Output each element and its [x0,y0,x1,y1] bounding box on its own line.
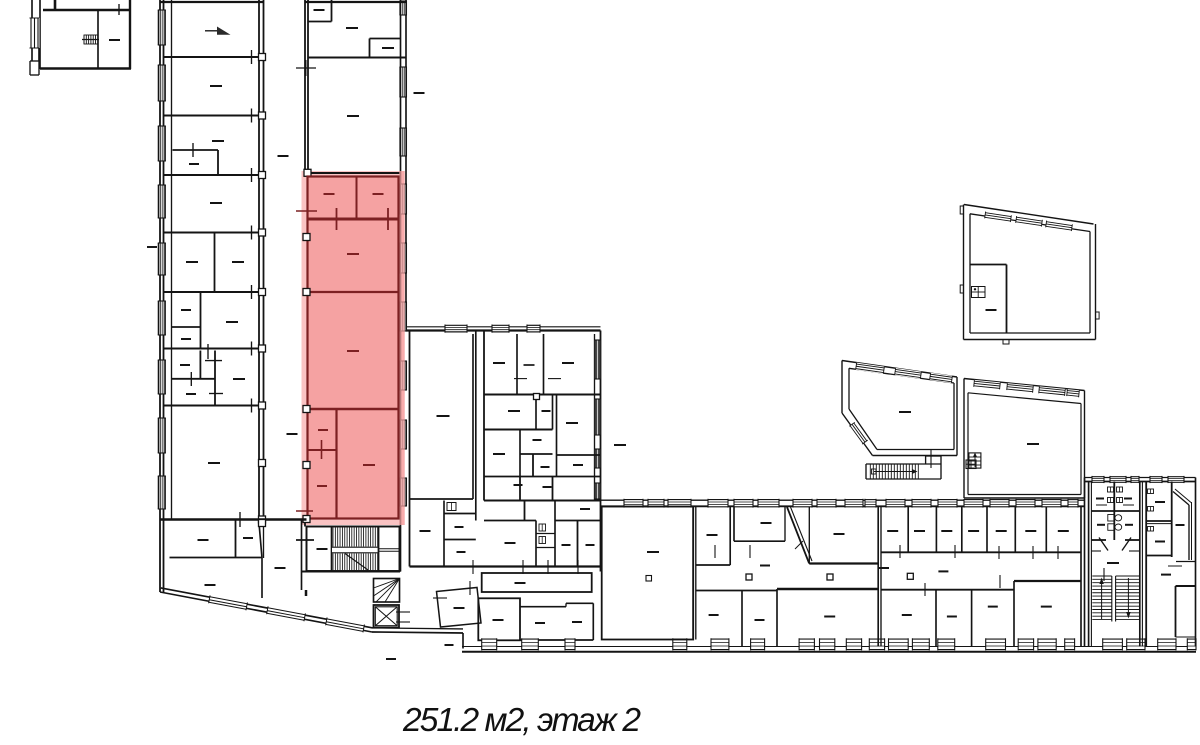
svg-text:251.2 м2, этаж 2: 251.2 м2, этаж 2 [402,702,641,739]
